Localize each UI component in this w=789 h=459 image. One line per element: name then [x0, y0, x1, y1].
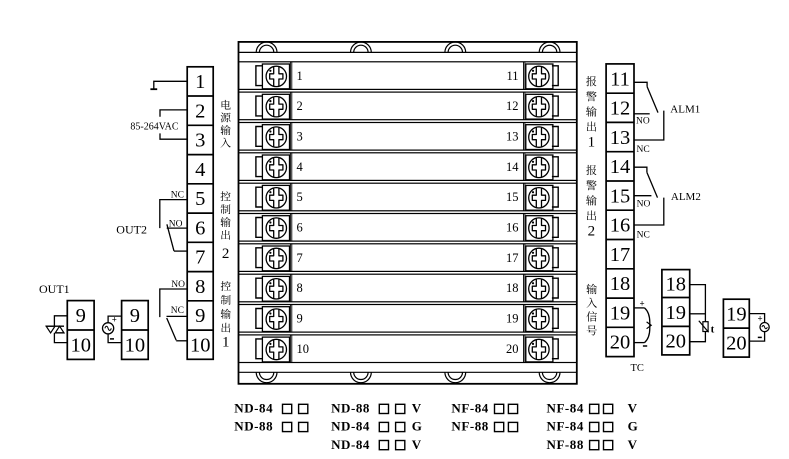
svg-text:9: 9 [76, 305, 86, 327]
svg-text:85-264VAC: 85-264VAC [130, 121, 178, 132]
svg-text:8: 8 [297, 281, 303, 295]
svg-text:ND-84: ND-84 [234, 401, 273, 416]
svg-text:NC: NC [171, 190, 184, 200]
svg-text:4: 4 [297, 160, 304, 174]
svg-text:G: G [412, 419, 422, 434]
svg-text:ALM2: ALM2 [671, 191, 701, 203]
svg-text:9: 9 [130, 305, 140, 327]
svg-text:ND-84: ND-84 [331, 437, 370, 452]
svg-text:17: 17 [610, 244, 631, 266]
svg-text:ND-88: ND-88 [331, 401, 370, 416]
svg-text:2: 2 [222, 246, 230, 262]
svg-text:NO: NO [637, 199, 651, 209]
svg-text:ND-88: ND-88 [234, 419, 273, 434]
svg-text:ALM1: ALM1 [670, 104, 700, 116]
svg-text:10: 10 [125, 335, 146, 357]
svg-text:V: V [628, 437, 638, 452]
svg-text:10: 10 [297, 342, 310, 356]
svg-text:10: 10 [190, 335, 211, 357]
svg-text:18: 18 [506, 281, 519, 295]
svg-text:1: 1 [588, 135, 596, 151]
svg-text:20: 20 [506, 342, 519, 356]
svg-text:6: 6 [297, 221, 303, 235]
svg-text:12: 12 [506, 99, 519, 113]
svg-text:19: 19 [610, 303, 631, 325]
svg-text:16: 16 [506, 221, 519, 235]
svg-text:1: 1 [222, 335, 230, 351]
svg-text:2: 2 [297, 99, 303, 113]
svg-text:13: 13 [506, 130, 519, 144]
svg-text:8: 8 [195, 276, 205, 298]
svg-text:V: V [412, 401, 422, 416]
svg-text:NF-84: NF-84 [547, 419, 584, 434]
svg-text:2: 2 [588, 224, 596, 240]
svg-text:OUT1: OUT1 [39, 282, 70, 296]
svg-text:10: 10 [70, 335, 91, 357]
svg-text:4: 4 [195, 159, 205, 181]
svg-text:+: + [112, 315, 117, 325]
svg-text:7: 7 [297, 251, 303, 265]
svg-text:13: 13 [610, 127, 631, 149]
svg-text:NF-84: NF-84 [451, 401, 488, 416]
svg-text:NF-88: NF-88 [547, 437, 584, 452]
svg-text:11: 11 [610, 68, 630, 90]
svg-text:14: 14 [506, 160, 519, 174]
svg-text:19: 19 [726, 303, 747, 325]
svg-text:NC: NC [171, 306, 184, 316]
svg-text:17: 17 [506, 251, 519, 265]
svg-text:TC: TC [631, 363, 644, 374]
svg-text:V: V [412, 437, 422, 452]
svg-text:NO: NO [636, 116, 650, 126]
svg-text:5: 5 [297, 190, 303, 204]
svg-text:5: 5 [195, 188, 205, 210]
svg-text:V: V [628, 401, 638, 416]
svg-text:20: 20 [610, 332, 631, 354]
svg-text:19: 19 [666, 302, 687, 324]
svg-text:9: 9 [195, 305, 205, 327]
svg-text:OUT2: OUT2 [116, 223, 147, 237]
svg-text:19: 19 [506, 312, 519, 326]
svg-text:15: 15 [610, 185, 631, 207]
svg-text:NF-84: NF-84 [547, 401, 584, 416]
svg-text:t: t [711, 324, 715, 336]
svg-text:NO: NO [171, 280, 185, 290]
svg-text:1: 1 [195, 71, 205, 93]
svg-text:+: + [640, 298, 645, 308]
svg-text:11: 11 [506, 69, 518, 83]
svg-text:1: 1 [297, 69, 303, 83]
svg-text:2: 2 [195, 100, 205, 122]
svg-text:NF-88: NF-88 [451, 419, 488, 434]
svg-text:14: 14 [610, 156, 631, 178]
svg-text:18: 18 [610, 273, 631, 295]
svg-text:NC: NC [637, 145, 650, 155]
svg-text:20: 20 [726, 332, 747, 354]
svg-text:20: 20 [666, 330, 687, 352]
svg-text:G: G [628, 419, 638, 434]
svg-text:6: 6 [195, 218, 205, 240]
svg-text:7: 7 [195, 247, 205, 269]
svg-text:3: 3 [195, 130, 205, 152]
svg-text:12: 12 [610, 98, 631, 120]
svg-text:+: + [758, 313, 763, 323]
svg-text:18: 18 [666, 273, 687, 295]
svg-text:9: 9 [297, 312, 303, 326]
svg-text:3: 3 [297, 130, 303, 144]
svg-text:15: 15 [506, 190, 519, 204]
svg-text:ND-84: ND-84 [331, 419, 370, 434]
svg-text:NC: NC [637, 231, 650, 241]
svg-text:NO: NO [169, 220, 183, 230]
svg-text:16: 16 [610, 215, 631, 237]
